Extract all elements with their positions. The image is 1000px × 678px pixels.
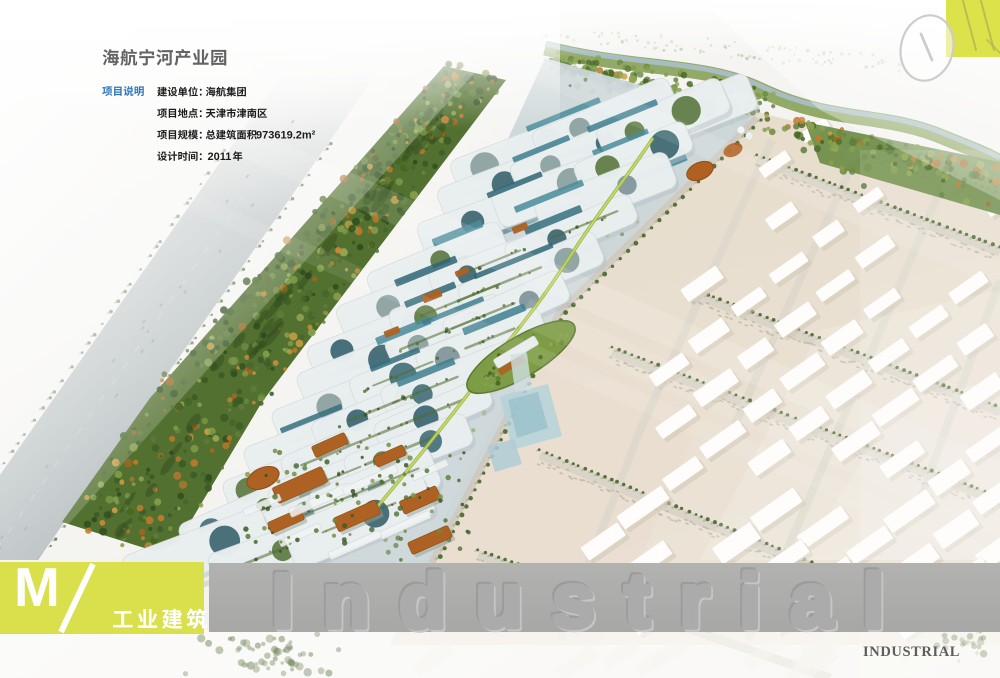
svg-text:973619.2m²: 973619.2m² xyxy=(256,130,316,142)
svg-text:INDUSTRIAL: INDUSTRIAL xyxy=(863,644,960,660)
svg-text:Industrial: Industrial xyxy=(272,559,914,644)
svg-text:M: M xyxy=(14,556,60,618)
svg-text:2011: 2011 xyxy=(208,151,232,163)
